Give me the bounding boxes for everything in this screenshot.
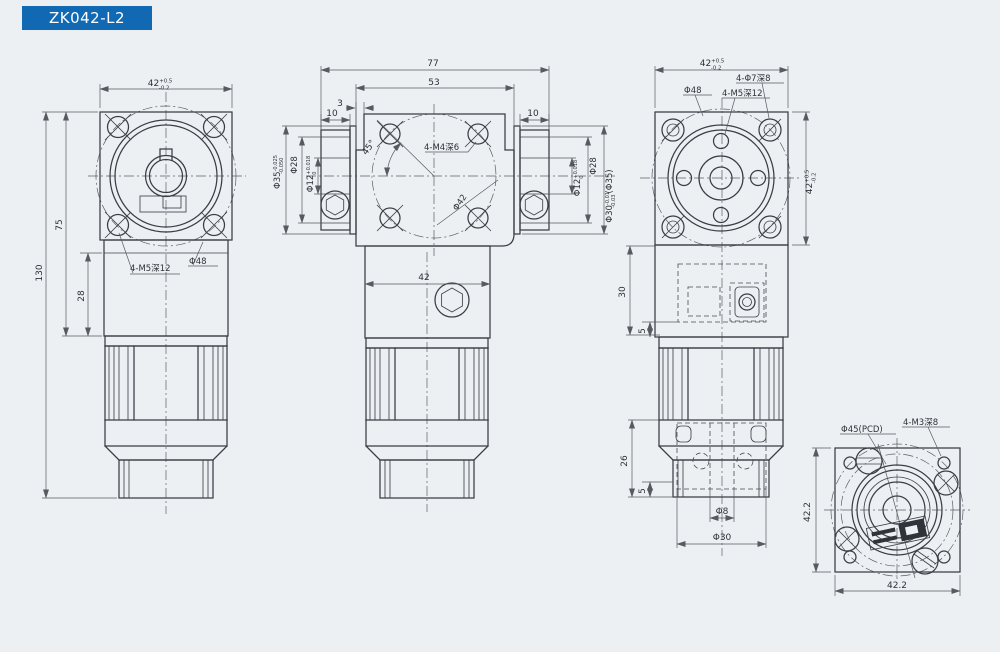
svg-text:42: 42	[418, 273, 429, 283]
dim-d-422-bottom: 42.2	[887, 581, 907, 591]
dim-b-10-left: 10	[326, 109, 338, 119]
dim-c-5-lower: 5	[638, 488, 648, 494]
leader-4m5	[722, 98, 770, 134]
dim-c-26: 26	[620, 455, 630, 467]
svg-text:Φ28: Φ28	[589, 157, 599, 175]
hex-plug-right	[525, 195, 542, 215]
label-c-phi48: Φ48	[684, 86, 702, 96]
label-c-4phi7: 4-Φ7深8	[736, 74, 770, 84]
dim-b-phi12-right: Φ12+0.0180	[573, 160, 585, 196]
svg-text:130: 130	[35, 264, 45, 281]
svg-text:42.2: 42.2	[803, 502, 813, 522]
svg-text:Φ45(PCD): Φ45(PCD)	[841, 425, 883, 435]
shaft-key-detail	[866, 516, 929, 550]
leader-phi45	[840, 434, 896, 464]
through-holes-phi7	[662, 119, 781, 238]
dim-c-5-upper: 5	[638, 328, 648, 334]
svg-text:Φ12+0.0180: Φ12+0.0180	[573, 160, 585, 196]
label-d-phi45: Φ45(PCD)	[841, 425, 883, 435]
svg-text:30: 30	[618, 286, 628, 298]
svg-text:Φ35-0.025-0.050: Φ35-0.025-0.050	[273, 155, 285, 189]
dim-b-45: 45°	[361, 138, 378, 157]
dim-b-phi28-right: Φ28	[589, 157, 599, 175]
svg-text:Φ8: Φ8	[716, 507, 729, 517]
svg-text:Φ30-0.01-0.03(Φ35): Φ30-0.01-0.03(Φ35)	[605, 169, 617, 222]
dim-c-phi30: Φ30	[713, 533, 732, 543]
svg-text:75: 75	[55, 219, 65, 230]
motor-adapter-right-view	[659, 337, 783, 497]
drawing-sheet: ZK042-L2	[0, 0, 1000, 652]
svg-text:10: 10	[527, 109, 539, 119]
leader-4m3	[902, 427, 950, 456]
dim-b-phi12-left: Φ12+0.0180	[306, 156, 318, 192]
svg-text:5: 5	[638, 488, 648, 494]
dim-b-3: 3	[337, 99, 343, 109]
svg-text:77: 77	[427, 59, 438, 69]
view-left-side	[42, 84, 246, 514]
svg-text:5: 5	[638, 328, 648, 334]
hex-plug-left	[326, 195, 343, 215]
dim-b-53: 53	[428, 78, 439, 88]
svg-text:42.2: 42.2	[887, 581, 907, 591]
dim-c-phi8: Φ8	[716, 507, 729, 517]
svg-text:4-M5深12: 4-M5深12	[722, 89, 763, 99]
svg-text:Φ48: Φ48	[189, 257, 207, 267]
view-motor-flange-detail	[812, 427, 970, 596]
label-c-4m5: 4-M5深12	[722, 89, 763, 99]
dim-a-42-top: 42+0.5-0.2	[148, 79, 173, 92]
svg-text:4-M3深8: 4-M3深8	[903, 418, 938, 428]
leader-phi48	[683, 95, 712, 116]
svg-text:10: 10	[326, 109, 338, 119]
label-d-4m3: 4-M3深8	[903, 418, 938, 428]
dim-b-77: 77	[427, 59, 438, 69]
svg-text:4-M5深12: 4-M5深12	[130, 264, 171, 274]
hex-plug-bottom	[442, 288, 463, 312]
dim-c-42-top: 42+0.5-0.2	[700, 59, 725, 72]
svg-text:4-M4深6: 4-M4深6	[424, 143, 459, 153]
svg-text:42+0.5-0.2: 42+0.5-0.2	[805, 170, 818, 195]
svg-text:3: 3	[337, 99, 343, 109]
dim-b-phi28-left: Φ28	[290, 156, 300, 174]
dim-b-phi30-right: Φ30-0.01-0.03(Φ35)	[605, 169, 617, 222]
svg-text:Φ12+0.0180: Φ12+0.0180	[306, 156, 318, 192]
technical-drawing: 42+0.5-0.275130284-M5深12Φ4877533101045°4…	[0, 0, 1000, 652]
svg-text:53: 53	[428, 78, 439, 88]
label-a-phi48: Φ48	[189, 257, 207, 267]
svg-text:26: 26	[620, 455, 630, 467]
clip-right	[751, 426, 766, 442]
dim-b-42: 42	[418, 273, 429, 283]
dim-a-130: 130	[35, 264, 45, 281]
svg-text:Φ30: Φ30	[713, 533, 732, 543]
dim-b-10-right: 10	[527, 109, 539, 119]
svg-text:42+0.5-0.2: 42+0.5-0.2	[148, 79, 173, 92]
svg-text:4-Φ7深8: 4-Φ7深8	[736, 74, 770, 84]
clip-left	[676, 426, 691, 442]
svg-text:28: 28	[77, 290, 87, 302]
svg-text:42+0.5-0.2: 42+0.5-0.2	[700, 59, 725, 72]
dim-b-phi35-left: Φ35-0.025-0.050	[273, 155, 285, 189]
label-b-4m4: 4-M4深6	[424, 143, 459, 153]
dim-a-28: 28	[77, 290, 87, 302]
dim-a-75: 75	[55, 219, 65, 230]
svg-text:45°: 45°	[361, 138, 378, 157]
view-right-side	[626, 66, 810, 556]
label-a-4m5: 4-M5深12	[130, 264, 171, 274]
svg-text:Φ48: Φ48	[684, 86, 702, 96]
dim-c-30: 30	[618, 286, 628, 298]
dim-d-422-left: 42.2	[803, 502, 813, 522]
svg-text:Φ28: Φ28	[290, 156, 300, 174]
view-front	[282, 66, 615, 512]
dim-c-42-right: 42+0.5-0.2	[805, 170, 818, 195]
